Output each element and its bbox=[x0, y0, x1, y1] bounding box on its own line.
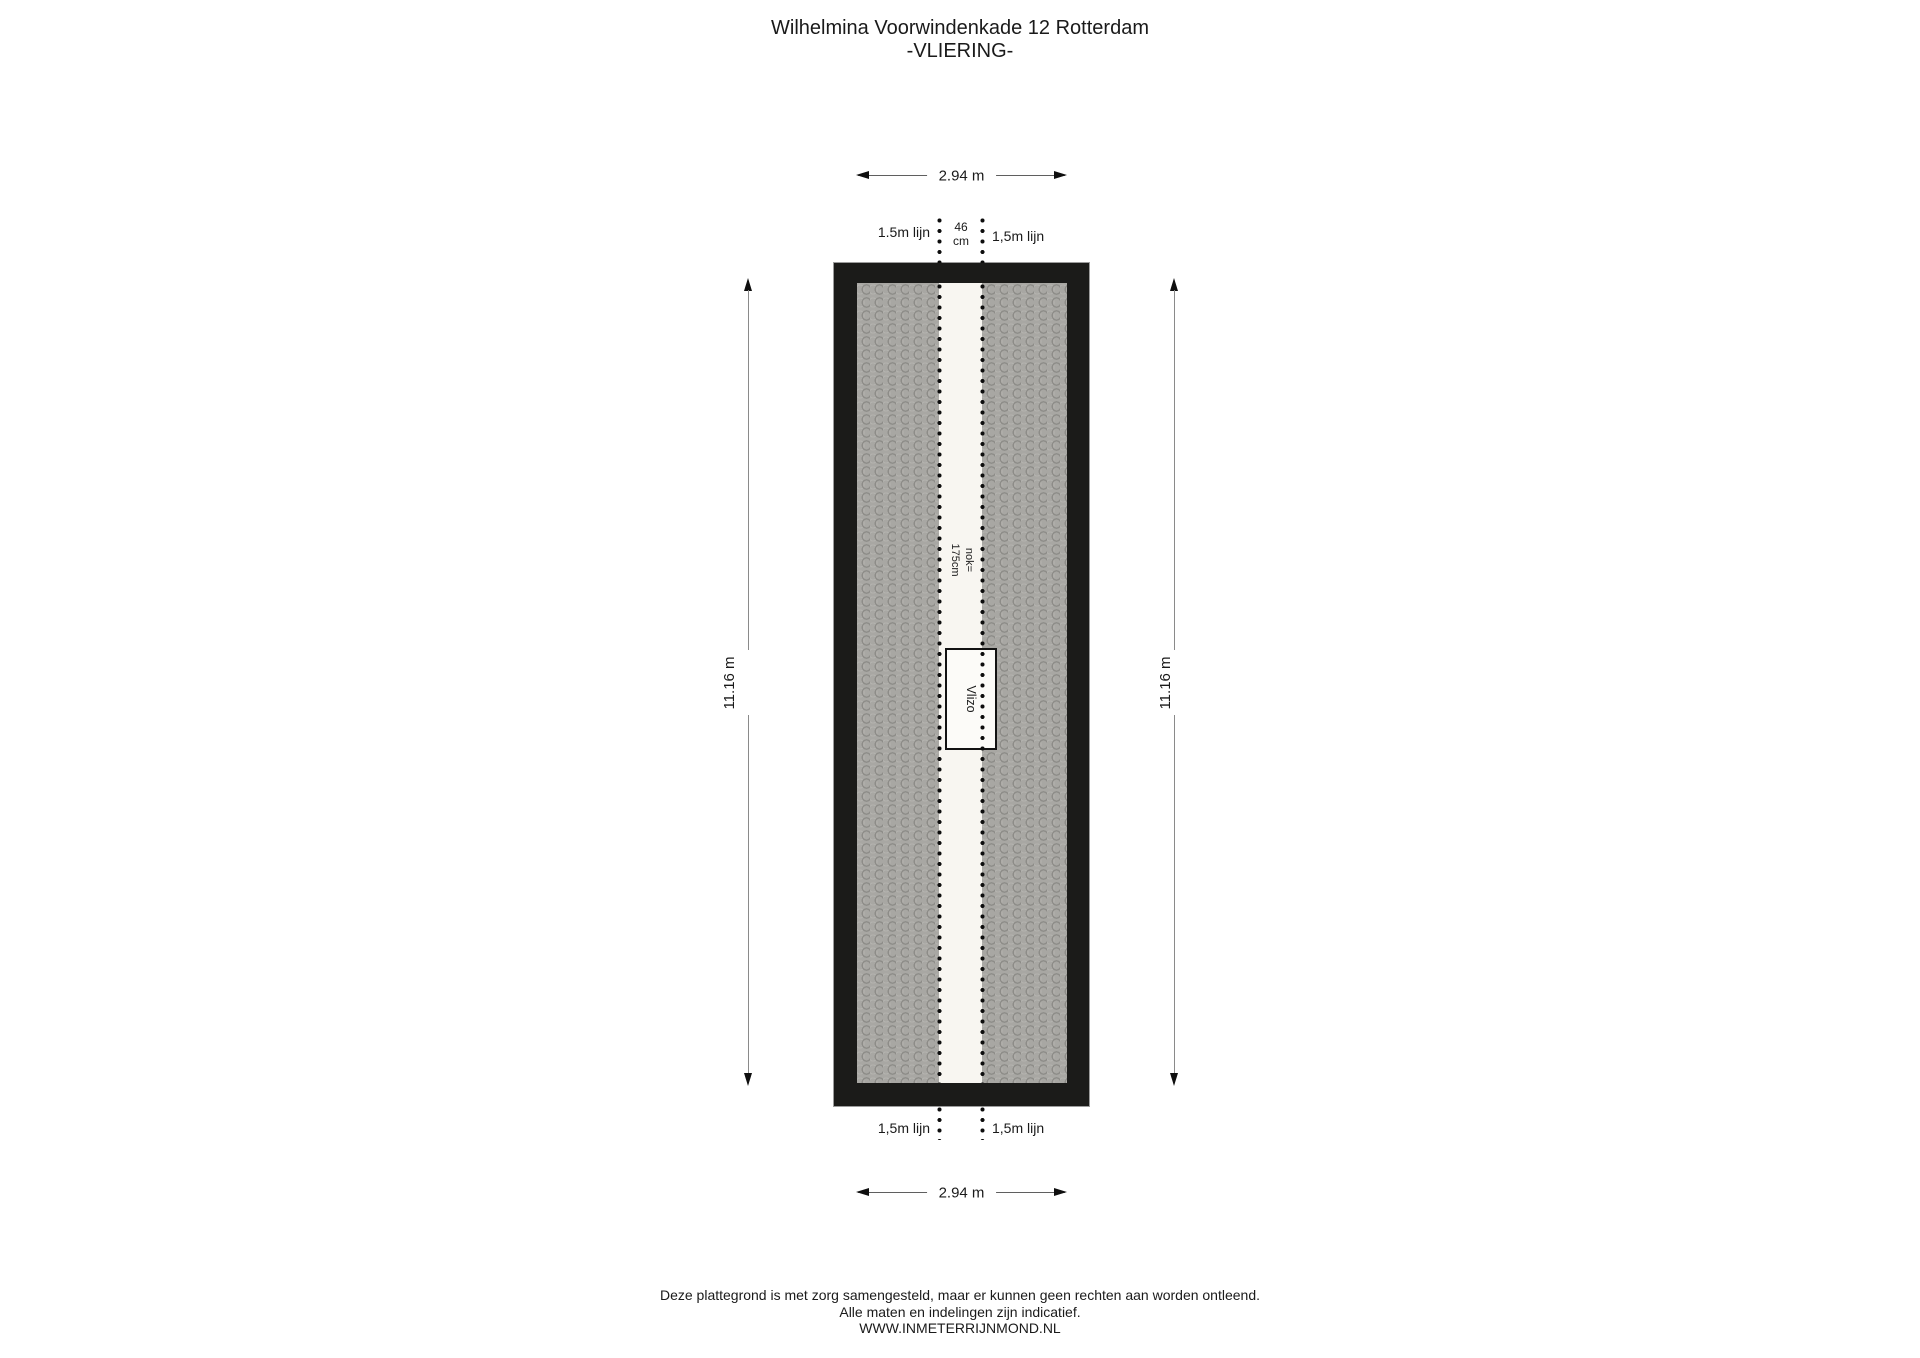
arrowhead-right-icon bbox=[1054, 1188, 1067, 1196]
footer-website: WWW.INMETERRIJNMOND.NL bbox=[0, 1320, 1920, 1337]
line-label-top-left: 1.5m lijn bbox=[830, 224, 930, 240]
footer: Deze plattegrond is met zorg samengestel… bbox=[0, 1287, 1920, 1337]
line-label-top-right: 1,5m lijn bbox=[992, 228, 1044, 244]
dotted-line-right-inside bbox=[980, 283, 985, 1083]
floorplan-page: Wilhelmina Voorwindenkade 12 Rotterdam -… bbox=[0, 0, 1920, 1358]
dimension-bottom-width: 2.94 m bbox=[856, 1184, 1067, 1201]
dimension-right-height-label: 11.16 m bbox=[1157, 654, 1173, 712]
ridge-height-label: nok= 175cm bbox=[946, 532, 976, 588]
ridge-height-line1: nok= bbox=[962, 532, 976, 588]
vlizo-label: Vlizo bbox=[964, 685, 978, 712]
ridge-height-line2: 175cm bbox=[948, 532, 962, 588]
address-title: Wilhelmina Voorwindenkade 12 Rotterdam bbox=[0, 17, 1920, 40]
low-headroom-hatch-left bbox=[857, 283, 939, 1083]
footer-disclaimer-line1: Deze plattegrond is met zorg samengestel… bbox=[0, 1287, 1920, 1304]
dotted-line-right-top bbox=[980, 217, 985, 263]
dimension-top-width: 2.94 m bbox=[856, 167, 1067, 184]
arrowhead-left-icon bbox=[856, 171, 869, 179]
dimension-left-height-label: 11.16 m bbox=[721, 654, 737, 712]
dimension-line bbox=[748, 290, 749, 650]
dotted-line-right-bottom bbox=[980, 1106, 985, 1140]
dimension-line bbox=[1174, 290, 1175, 650]
arrowhead-right-icon bbox=[1054, 171, 1067, 179]
dimension-line bbox=[1174, 715, 1175, 1074]
dimension-top-width-label: 2.94 m bbox=[927, 167, 997, 184]
floor-title: -VLIERING- bbox=[0, 40, 1920, 63]
arrowhead-left-icon bbox=[856, 1188, 869, 1196]
dotted-line-left-inside bbox=[937, 283, 942, 1083]
vlizo-hatch-box: Vlizo bbox=[945, 648, 997, 750]
page-title: Wilhelmina Voorwindenkade 12 Rotterdam -… bbox=[0, 17, 1920, 63]
dotted-line-left-bottom bbox=[937, 1106, 942, 1140]
dotted-line-left-top bbox=[937, 217, 942, 263]
line-label-bottom-right: 1,5m lijn bbox=[992, 1120, 1044, 1136]
footer-disclaimer-line2: Alle maten en indelingen zijn indicatief… bbox=[0, 1304, 1920, 1321]
arrowhead-down-icon bbox=[1170, 1073, 1178, 1086]
arrowhead-down-icon bbox=[744, 1073, 752, 1086]
dimension-bottom-width-label: 2.94 m bbox=[927, 1184, 997, 1201]
dimension-left-height bbox=[742, 278, 755, 1086]
dimension-line bbox=[748, 715, 749, 1074]
line-label-bottom-left: 1,5m lijn bbox=[830, 1120, 930, 1136]
